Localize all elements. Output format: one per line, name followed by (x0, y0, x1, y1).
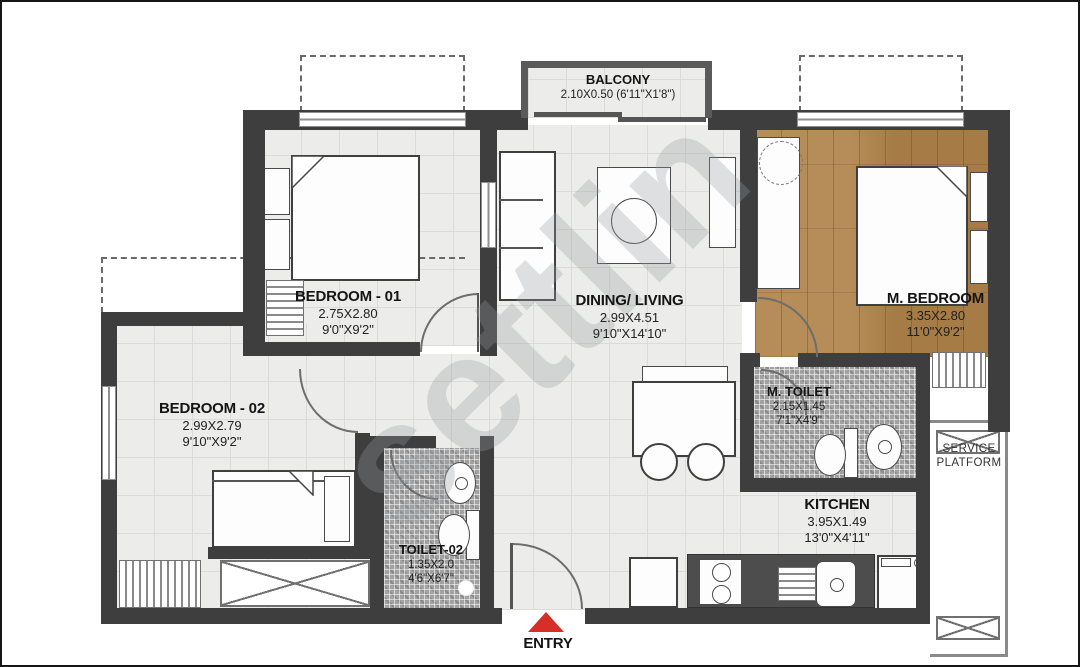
nightstand (970, 172, 988, 222)
sink-drain (830, 578, 844, 592)
floor-plan: settlin BALCONY 2.10X0.50 (6'11"X1'8") B… (0, 0, 1080, 667)
room-dims-m: 2.99X2.79 (122, 418, 302, 434)
bedroom-01-label: BEDROOM - 01 2.75X2.80 9'0"X9'2" (258, 288, 438, 338)
door-leaf (477, 293, 479, 352)
wall (101, 312, 265, 326)
wall (988, 110, 1010, 432)
room-dims-ft: 7'1"X4'9" (744, 414, 854, 428)
room-name: BEDROOM - 02 (122, 400, 302, 418)
dining-chair (640, 443, 678, 481)
entry-text: ENTRY (512, 635, 584, 653)
fridge (629, 557, 678, 608)
nightstand (263, 219, 290, 270)
wall (480, 436, 494, 624)
entry-label: ENTRY (512, 635, 584, 653)
balcony-wall (705, 61, 712, 118)
room-dims-ft: 4'6"X6'7" (378, 572, 484, 586)
wall (208, 547, 370, 559)
toilet-wc (814, 434, 846, 476)
service-platform-outline (1005, 420, 1008, 657)
room-name: BEDROOM - 01 (258, 288, 438, 306)
room-dims-m: 1.35X2.0 (378, 558, 484, 572)
drainboard (778, 567, 816, 601)
entry-door-leaf (510, 543, 513, 609)
nightstand (970, 230, 988, 284)
window (797, 112, 964, 127)
wall (355, 433, 370, 559)
room-name-line1: SERVICE (936, 442, 1002, 456)
room-dims-m: 3.35X2.80 (843, 308, 1028, 324)
kitchen-label: KITCHEN 3.95X1.49 13'0"X4'11" (752, 496, 922, 546)
bed-fold (291, 155, 325, 189)
balcony-wall (521, 61, 528, 118)
shoe-rack (119, 560, 201, 608)
wall (370, 436, 384, 624)
room-name: M. BEDROOM (843, 290, 1028, 308)
room-name: KITCHEN (752, 496, 922, 514)
wall (740, 478, 930, 492)
basin-drain (878, 440, 892, 454)
room-dims-ft: 9'10"X9'2" (122, 434, 302, 450)
balcony-wall (521, 61, 712, 68)
toilet-tank (844, 428, 858, 478)
sliding-door (618, 117, 706, 122)
projection-dashed-outline (300, 55, 465, 112)
room-dims-ft: 11'0"X9'2" (843, 324, 1028, 340)
sliding-door (534, 112, 622, 117)
room-dims-m: 2.75X2.80 (258, 306, 438, 322)
sofa-cushion-line (499, 199, 543, 201)
service-platform-label: SERVICE PLATFORM (936, 442, 1002, 470)
service-platform-hatch (936, 616, 1000, 640)
window-seat (932, 352, 986, 388)
nightstand (263, 168, 290, 215)
room-dims-ft: 9'10"X14'10" (532, 326, 727, 342)
master-bedroom-label: M. BEDROOM 3.35X2.80 11'0"X9'2" (843, 290, 1028, 340)
room-dims-m: 3.95X1.49 (752, 514, 922, 530)
console-table (709, 157, 736, 248)
sofa-cushion-line (499, 247, 543, 249)
window (102, 386, 116, 480)
service-platform-outline (930, 654, 1008, 657)
room-dims-m: 2.15X1.45 (744, 400, 854, 414)
wall (740, 110, 757, 302)
room-dims-ft: 13'0"X4'11" (752, 530, 922, 546)
room-dims: 2.10X0.50 (6'11"X1'8") (534, 88, 702, 102)
room-name-line2: PLATFORM (936, 456, 1002, 470)
bed-fold (288, 470, 314, 496)
window (299, 112, 466, 127)
bed-fold (936, 166, 968, 198)
dining-chair (687, 443, 725, 481)
wall (370, 436, 436, 448)
bedroom-02-label: BEDROOM - 02 2.99X2.79 9'10"X9'2" (122, 400, 302, 450)
wall (916, 353, 930, 624)
toilet-02-label: TOILET-02 1.35X2.0 4'6"X6'7" (378, 542, 484, 586)
room-dims-ft: 9'0"X9'2" (258, 322, 438, 338)
basin-drain (455, 477, 468, 490)
stove-burner (712, 585, 731, 604)
wall (585, 608, 930, 624)
sofa (499, 151, 556, 301)
room-name: M. TOILET (744, 384, 854, 400)
wall (101, 608, 502, 624)
dining-living-label: DINING/ LIVING 2.99X4.51 9'10"X14'10" (532, 292, 727, 342)
round-table (611, 198, 657, 244)
projection-dashed-outline (799, 55, 963, 112)
dressing-mirror (759, 141, 803, 185)
balcony-label: BALCONY 2.10X0.50 (6'11"X1'8") (534, 72, 702, 102)
room-dims-m: 2.99X4.51 (532, 310, 727, 326)
wall (243, 342, 420, 356)
room-name: BALCONY (534, 72, 702, 88)
entry-arrow-icon (528, 612, 564, 632)
master-toilet-label: M. TOILET 2.15X1.45 7'1"X4'9" (744, 384, 854, 428)
stove-burner (712, 563, 731, 582)
room-name: DINING/ LIVING (532, 292, 727, 310)
pillow (324, 476, 350, 542)
washing-machine-panel (881, 558, 911, 567)
wardrobe (220, 560, 370, 607)
room-name: TOILET-02 (378, 542, 484, 558)
window (481, 182, 496, 248)
